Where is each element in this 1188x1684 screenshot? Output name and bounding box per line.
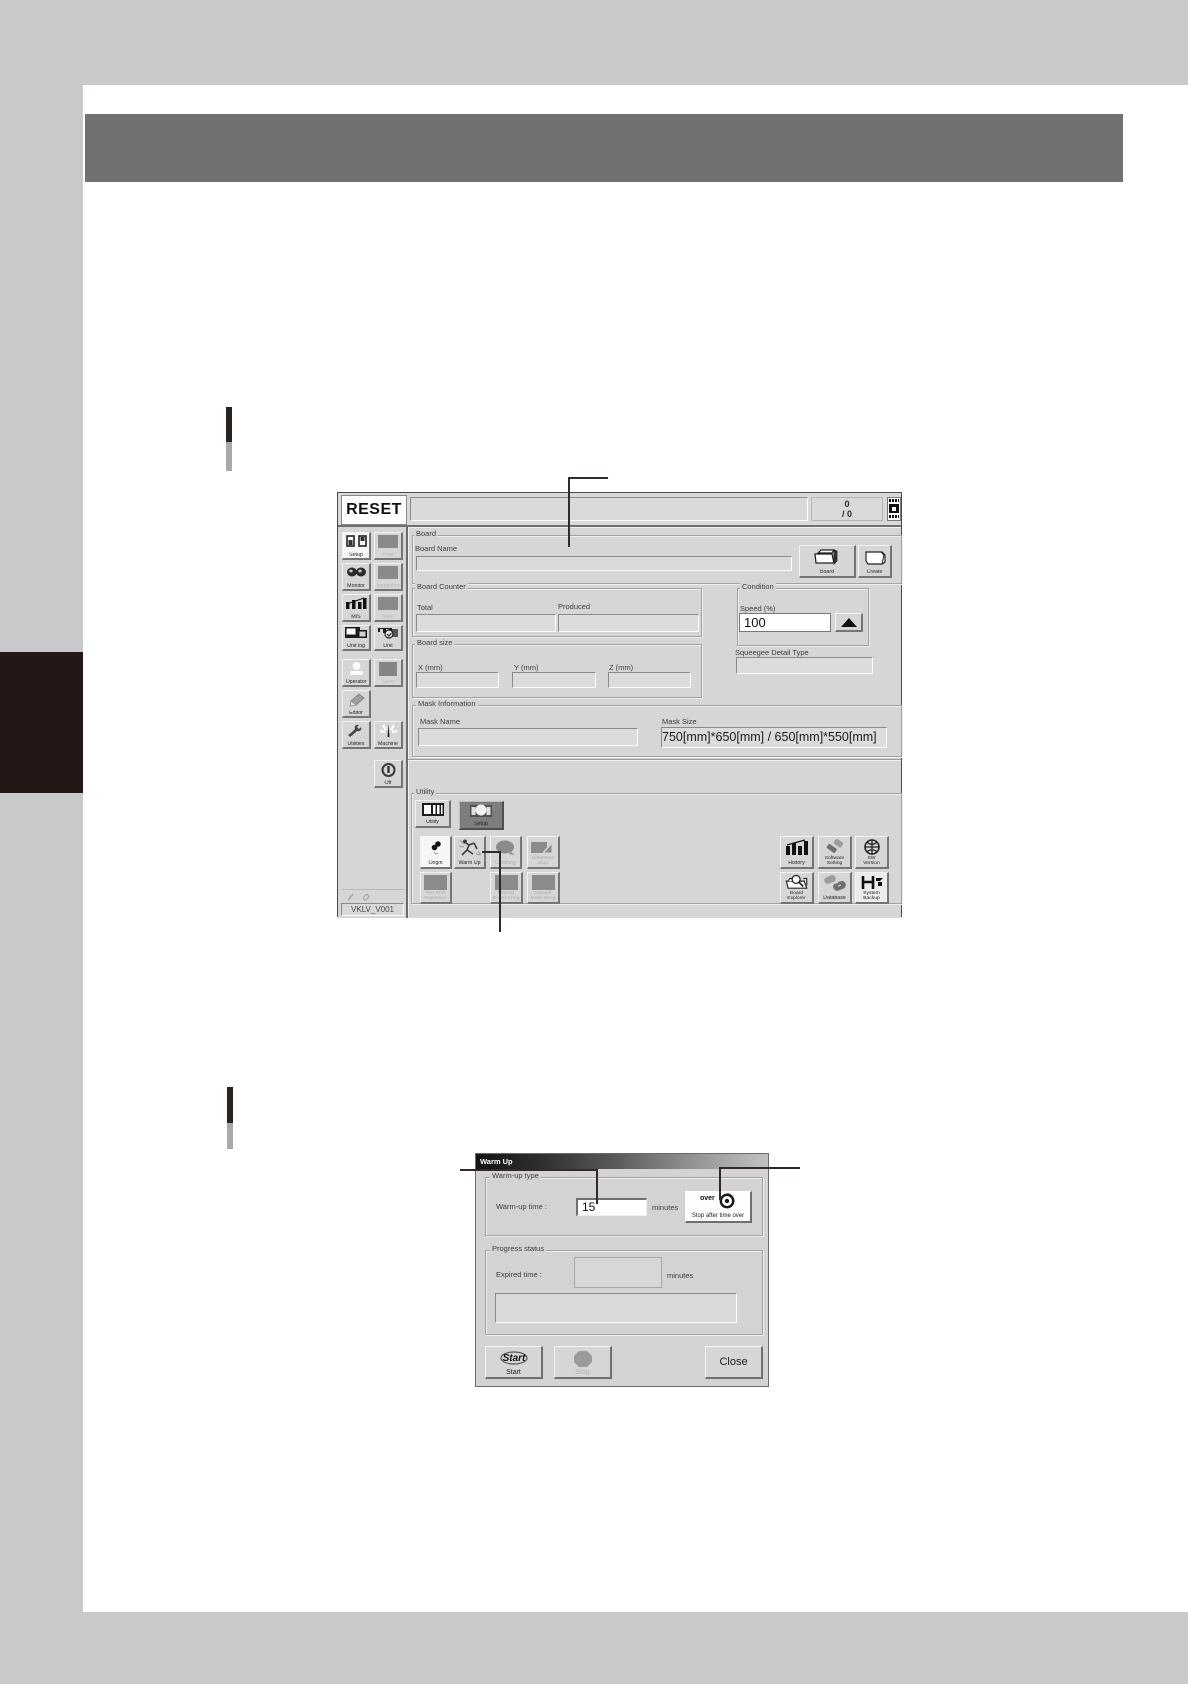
svg-text:Start: Start: [502, 1353, 525, 1364]
